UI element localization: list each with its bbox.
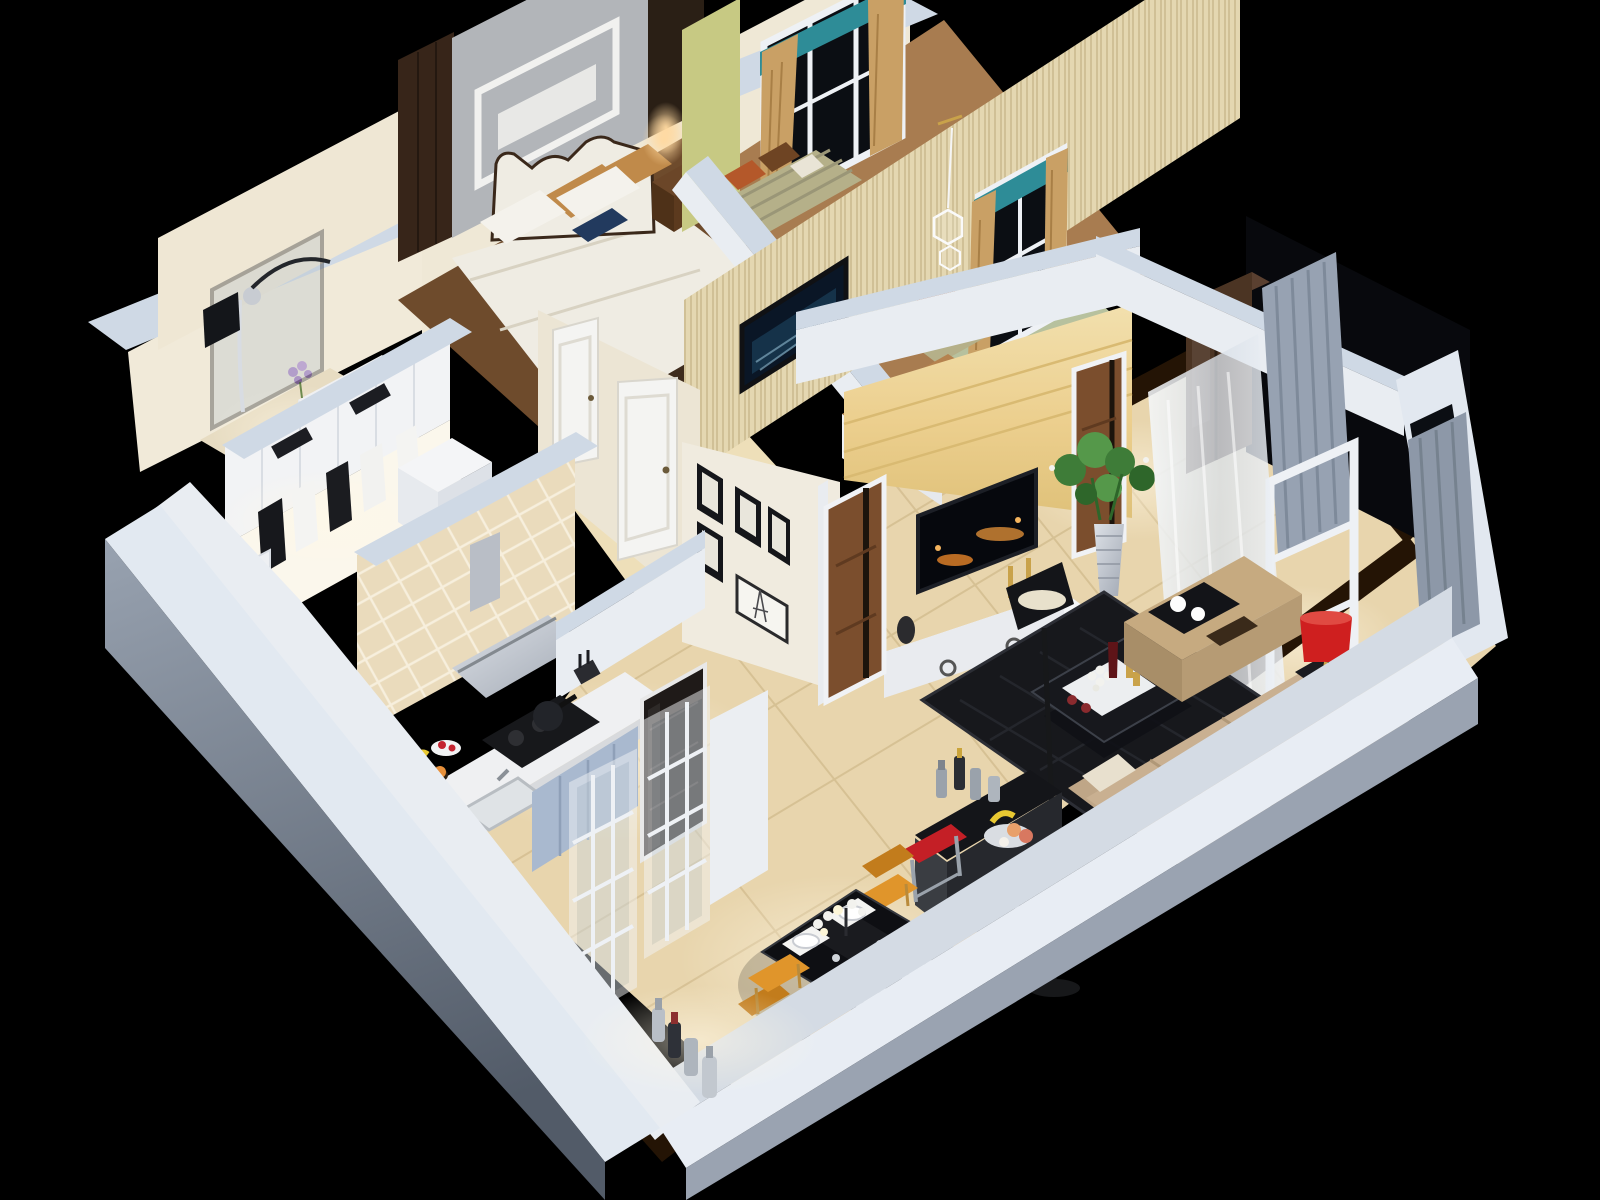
white-blossom [1143, 457, 1149, 463]
white-blossom [1049, 465, 1055, 471]
grey-curtain-entry [1262, 252, 1352, 556]
partition-wall [710, 690, 768, 905]
tv-night-lights [935, 545, 941, 551]
shade-glow [1018, 590, 1066, 610]
render-stage: 3D cutaway render of an apartment floor … [0, 0, 1600, 1200]
door-knob [588, 395, 594, 401]
peach [1007, 823, 1021, 837]
peach [1019, 829, 1033, 843]
dark-wardrobe [398, 32, 454, 262]
gold-candle [1133, 672, 1140, 686]
ledge-light [580, 985, 820, 1095]
door-knob [663, 467, 670, 474]
wine-bottle [1108, 642, 1118, 678]
shower-head [243, 287, 261, 305]
patterned-vase [897, 616, 915, 644]
tv-night-lights [1015, 517, 1021, 523]
tv-night-lights [976, 527, 1024, 541]
grid-door-panel [648, 692, 706, 952]
egg [999, 837, 1009, 847]
tv-night-lights [937, 554, 973, 566]
tan-curtain-right [868, 0, 904, 156]
pan [533, 701, 563, 731]
lamp-glow [642, 114, 686, 166]
white-door-2 [618, 378, 677, 560]
apartment-cutaway-render: 3D cutaway render of an apartment floor … [0, 0, 1600, 1200]
white-cup [1191, 607, 1205, 621]
brown-sliding-door-left [826, 478, 884, 702]
white-cup [1170, 596, 1186, 612]
shade-top [1300, 611, 1352, 625]
glass [832, 954, 840, 962]
red-cup [1081, 703, 1091, 713]
red-cup [1067, 695, 1077, 705]
